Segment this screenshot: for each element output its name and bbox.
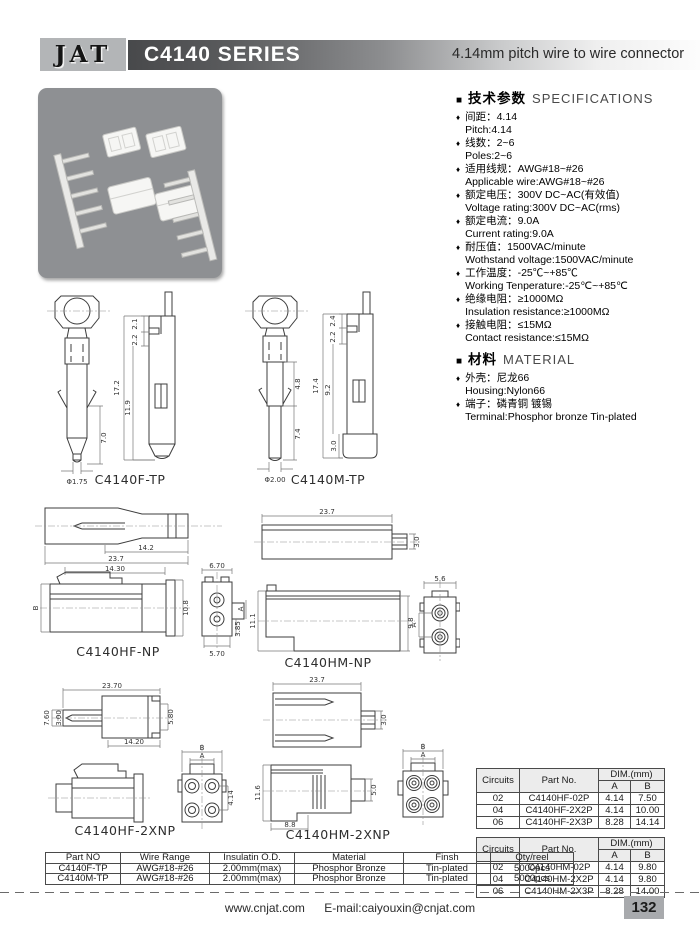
product-photo bbox=[38, 88, 222, 278]
dim-label: 10.8 bbox=[182, 600, 190, 616]
dim-label: 3.00 bbox=[55, 710, 63, 726]
spec-en: Wothstand voltage:1500VAC/minute bbox=[465, 254, 633, 267]
spec-item: ♦ 额定电流：9.0A Current rating:9.0A bbox=[456, 215, 700, 241]
column-header: Wire Range bbox=[121, 853, 210, 864]
top-view bbox=[263, 693, 388, 747]
cell: Phosphor Bronze bbox=[295, 874, 404, 885]
dim-label: 23.70 bbox=[102, 682, 122, 690]
spec-cn: 适用线规：AWG#18~#26 bbox=[465, 163, 604, 176]
spec-item: ♦ 线数：2~6 Poles:2~6 bbox=[456, 137, 700, 163]
hf-dim-table: Circuits Part No. DIM.(mm) A B 02 C4140H… bbox=[476, 768, 665, 829]
cell: Tin-plated bbox=[404, 874, 491, 885]
dim-label: 23.7 bbox=[319, 508, 335, 516]
square-bullet-icon: ■ bbox=[456, 356, 462, 367]
spec-item: ♦ 间距：4.14 Pitch:4.14 bbox=[456, 111, 700, 137]
drawing-label: C4140M-TP bbox=[291, 472, 365, 487]
material-en: Terminal:Phosphor bronze Tin-plated bbox=[465, 411, 637, 424]
spec-en: Voltage rating:300V DC~AC(rms) bbox=[465, 202, 620, 215]
spec-en: Applicable wire:AWG#18~#26 bbox=[465, 176, 604, 189]
dim-label: 5.0 bbox=[370, 784, 378, 795]
cell: 5000pcs bbox=[491, 863, 574, 874]
cell: C4140M-TP bbox=[46, 874, 121, 885]
dim-label: 5.6 bbox=[434, 575, 446, 583]
spec-item: ♦ 额定电压：300V DC~AC(有效值) Voltage rating:30… bbox=[456, 189, 700, 215]
page-number: 132 bbox=[624, 896, 664, 919]
drawing-label: C4140HM-2XNP bbox=[286, 827, 391, 842]
drawing-label: C4140HF-NP bbox=[76, 644, 160, 659]
dim-label: A bbox=[237, 606, 245, 611]
dim-label: 9.2 bbox=[324, 384, 332, 395]
material-en: Housing:Nylon66 bbox=[465, 385, 545, 398]
spec-en: Contact resistance:≤15MΩ bbox=[465, 332, 589, 345]
spec-item: ♦ 耐压值：1500VAC/minute Wothstand voltage:1… bbox=[456, 241, 700, 267]
specifications-header: ■ 技术参数 SPECIFICATIONS bbox=[456, 87, 700, 107]
dim-label: 23.7 bbox=[108, 555, 124, 563]
dim-label: 17.4 bbox=[312, 378, 320, 394]
material-cn: 外壳：尼龙66 bbox=[465, 372, 545, 385]
drawing-c4140hm-np: 23.7 3.0 11.1 9.8 5.6 A C4140HM-NP bbox=[250, 505, 460, 670]
spec-item: ♦ 适用线规：AWG#18~#26 Applicable wire:AWG#18… bbox=[456, 163, 700, 189]
spec-cn: 耐压值：1500VAC/minute bbox=[465, 241, 633, 254]
cell: 9.80 bbox=[631, 874, 665, 886]
cell: AWG#18-#26 bbox=[121, 863, 210, 874]
square-bullet-icon: ■ bbox=[456, 95, 462, 106]
spec-cn: 工作温度：-25℃~+85℃ bbox=[465, 267, 628, 280]
dim-label: 3.0 bbox=[330, 440, 338, 451]
dim-label: 2.1 bbox=[131, 318, 139, 329]
cell: AWG#18-#26 bbox=[121, 874, 210, 885]
spec-cn: 接触电阻：≤15MΩ bbox=[465, 319, 589, 332]
dim-label: B bbox=[421, 743, 426, 751]
spec-en: Pitch:4.14 bbox=[465, 124, 517, 137]
cell: 2.00mm(max) bbox=[210, 863, 295, 874]
dim-label: 7.60 bbox=[43, 710, 51, 726]
dim-label: 3.0 bbox=[413, 536, 421, 547]
cell: 4.14 bbox=[599, 874, 631, 886]
diamond-bullet-icon: ♦ bbox=[456, 137, 460, 163]
specifications-section: ■ 技术参数 SPECIFICATIONS ♦ 间距：4.14 Pitch:4.… bbox=[456, 84, 700, 424]
dim-label: 11.9 bbox=[124, 400, 132, 416]
dim-label: 4.8 bbox=[294, 378, 302, 389]
top-view bbox=[52, 696, 172, 738]
specs-title-cn: 技术参数 bbox=[468, 87, 526, 107]
header-row: Part NO Wire Range Insulatin O.D. Materi… bbox=[46, 853, 574, 864]
spec-item: ♦ 接触电阻：≤15MΩ Contact resistance:≤15MΩ bbox=[456, 319, 700, 345]
table-row: C4140F-TP AWG#18-#26 2.00mm(max) Phospho… bbox=[46, 863, 574, 874]
column-header: Material bbox=[295, 853, 404, 864]
spec-cn: 额定电压：300V DC~AC(有效值) bbox=[465, 189, 620, 202]
page-tagline: 4.14mm pitch wire to wire connector bbox=[452, 46, 684, 62]
cell: 4.14 bbox=[599, 793, 631, 805]
drawing-c4140hf-2xnp: 23.70 7.60 3.00 5.80 14.20 B bbox=[30, 678, 255, 838]
dim-label: 5.70 bbox=[209, 650, 225, 658]
drawing-label: C4140HM-NP bbox=[284, 655, 371, 670]
cell: 8.28 bbox=[599, 817, 631, 829]
dim-label: A bbox=[200, 752, 205, 760]
footer-divider bbox=[0, 892, 700, 893]
dim-label: A bbox=[421, 751, 426, 759]
diamond-bullet-icon: ♦ bbox=[456, 215, 460, 241]
dim-label: 17.2 bbox=[113, 380, 121, 396]
dim-label: 14.20 bbox=[124, 738, 144, 746]
dim-label: Φ1.75 bbox=[66, 478, 87, 486]
diamond-bullet-icon: ♦ bbox=[456, 372, 460, 398]
diamond-bullet-icon: ♦ bbox=[456, 189, 460, 215]
material-title-cn: 材料 bbox=[468, 348, 497, 368]
cell: 4.14 bbox=[599, 805, 631, 817]
column-header: Qty/reel bbox=[491, 853, 574, 864]
side-view bbox=[40, 572, 190, 636]
drawing-c4140f-tp: 7.0 Φ1.75 2.1 2.2 17.2 11.9 C4140F-TP bbox=[45, 288, 235, 488]
dim-label: 5.80 bbox=[167, 709, 175, 725]
column-header: Part No. bbox=[520, 769, 599, 793]
top-view bbox=[35, 508, 222, 544]
spec-cn: 绝缘电阻：≥1000MΩ bbox=[465, 293, 609, 306]
column-header: DIM.(mm) bbox=[599, 838, 665, 850]
material-cn: 端子：磷青铜 镀锡 bbox=[465, 398, 637, 411]
spec-cn: 额定电流：9.0A bbox=[465, 215, 554, 228]
drawing-c4140hm-2xnp: 23.7 3.0 11.6 8.8 5.0 B A bbox=[253, 675, 468, 843]
terminal-spec-table: Part NO Wire Range Insulatin O.D. Materi… bbox=[45, 852, 574, 885]
diamond-bullet-icon: ♦ bbox=[456, 267, 460, 293]
cell: 06 bbox=[477, 817, 520, 829]
spec-cn: 线数：2~6 bbox=[465, 137, 514, 150]
diamond-bullet-icon: ♦ bbox=[456, 163, 460, 189]
side-view bbox=[149, 292, 175, 459]
dim-label: 2.2 bbox=[329, 331, 337, 342]
dim-label: 14.2 bbox=[138, 544, 154, 552]
table-row: C4140M-TP AWG#18-#26 2.00mm(max) Phospho… bbox=[46, 874, 574, 885]
dim-label: 3.85 bbox=[234, 621, 242, 637]
spec-en: Poles:2~6 bbox=[465, 150, 514, 163]
diamond-bullet-icon: ♦ bbox=[456, 293, 460, 319]
drawing-label: C4140HF-2XNP bbox=[74, 823, 175, 838]
end-view bbox=[420, 581, 460, 661]
dim-label: Φ2.00 bbox=[264, 476, 285, 484]
spec-cn: 间距：4.14 bbox=[465, 111, 517, 124]
dim-label: 11.1 bbox=[250, 613, 257, 629]
dim-label: 11.6 bbox=[254, 785, 262, 801]
column-header: Part NO bbox=[46, 853, 121, 864]
dim-label: 6.70 bbox=[209, 562, 225, 570]
drawing-label: C4140F-TP bbox=[95, 472, 166, 487]
dim-label: 4.14 bbox=[227, 790, 235, 806]
spec-en: Insulation resistance:≥1000MΩ bbox=[465, 306, 609, 319]
column-header: DIM.(mm) bbox=[599, 769, 665, 781]
cell: 2.00mm(max) bbox=[210, 874, 295, 885]
table-row: 06 C4140HF-2X3P 8.28 14.14 bbox=[477, 817, 665, 829]
material-item: ♦ 端子：磷青铜 镀锡 Terminal:Phosphor bronze Tin… bbox=[456, 398, 700, 424]
diamond-bullet-icon: ♦ bbox=[456, 319, 460, 345]
email-text: E-mail:caiyouxin@cnjat.com bbox=[324, 901, 475, 915]
spec-item: ♦ 工作温度：-25℃~+85℃ Working Tenperature:-25… bbox=[456, 267, 700, 293]
product-photo-illustration bbox=[38, 88, 222, 278]
spec-en: Working Tenperature:-25℃~+85℃ bbox=[465, 280, 628, 293]
cell: 9.80 bbox=[631, 862, 665, 874]
material-item: ♦ 外壳：尼龙66 Housing:Nylon66 bbox=[456, 372, 700, 398]
cell: C4140HF-02P bbox=[520, 793, 599, 805]
dim-label: 7.4 bbox=[294, 428, 302, 440]
dim-label: B bbox=[200, 744, 205, 752]
side-view bbox=[258, 585, 415, 651]
cell: C4140HF-2X2P bbox=[520, 805, 599, 817]
dim-label: 2.2 bbox=[131, 334, 139, 345]
cell: 4.14 bbox=[599, 862, 631, 874]
drawing-c4140hf-np: 14.2 23.7 14.30 B 10.8 6.70 5.70 3.85 bbox=[30, 502, 250, 662]
column-header: Finsh bbox=[404, 853, 491, 864]
spec-item: ♦ 绝缘电阻：≥1000MΩ Insulation resistance:≥10… bbox=[456, 293, 700, 319]
cell: 7.50 bbox=[631, 793, 665, 805]
cell: 5000pcs bbox=[491, 874, 574, 885]
cell: 14.14 bbox=[631, 817, 665, 829]
dim-label: A bbox=[410, 622, 418, 627]
cell: Tin-plated bbox=[404, 863, 491, 874]
cell: C4140F-TP bbox=[46, 863, 121, 874]
cell: 04 bbox=[477, 805, 520, 817]
material-header: ■ 材料 MATERIAL bbox=[456, 348, 700, 368]
cell: C4140HF-2X3P bbox=[520, 817, 599, 829]
column-header: B bbox=[631, 850, 665, 862]
footer: www.cnjat.com E-mail:caiyouxin@cnjat.com bbox=[0, 901, 700, 915]
diamond-bullet-icon: ♦ bbox=[456, 398, 460, 424]
side-view bbox=[48, 764, 152, 822]
dim-label: B bbox=[32, 605, 40, 610]
specs-title-en: SPECIFICATIONS bbox=[532, 91, 653, 106]
website-text: www.cnjat.com bbox=[225, 901, 305, 915]
catalog-page: JAT C4140 SERIES 4.14mm pitch wire to wi… bbox=[0, 0, 700, 950]
column-header: A bbox=[599, 850, 631, 862]
diamond-bullet-icon: ♦ bbox=[456, 241, 460, 267]
spec-en: Current rating:9.0A bbox=[465, 228, 554, 241]
dim-label: 23.7 bbox=[309, 676, 325, 684]
cell: 10.00 bbox=[631, 805, 665, 817]
drawing-c4140m-tp: 4.8 7.4 Φ2.00 2.4 2.2 17.4 9.2 3.0 C4140… bbox=[245, 288, 435, 488]
series-title: C4140 SERIES bbox=[128, 43, 301, 67]
dim-label: 3.0 bbox=[380, 714, 388, 725]
column-header: B bbox=[631, 781, 665, 793]
jat-logo: JAT bbox=[40, 38, 126, 71]
top-view bbox=[254, 525, 420, 559]
column-header: Insulatin O.D. bbox=[210, 853, 295, 864]
column-header: A bbox=[599, 781, 631, 793]
dim-label: 2.4 bbox=[329, 315, 337, 327]
cell: 02 bbox=[477, 793, 520, 805]
diamond-bullet-icon: ♦ bbox=[456, 111, 460, 137]
side-view bbox=[343, 292, 377, 458]
cell: Phosphor Bronze bbox=[295, 863, 404, 874]
column-header: Circuits bbox=[477, 769, 520, 793]
material-title-en: MATERIAL bbox=[503, 352, 575, 367]
side-view bbox=[263, 765, 373, 821]
dim-label: 7.0 bbox=[100, 432, 108, 443]
table-row: 04 C4140HF-2X2P 4.14 10.00 bbox=[477, 805, 665, 817]
table-row: 02 C4140HF-02P 4.14 7.50 bbox=[477, 793, 665, 805]
